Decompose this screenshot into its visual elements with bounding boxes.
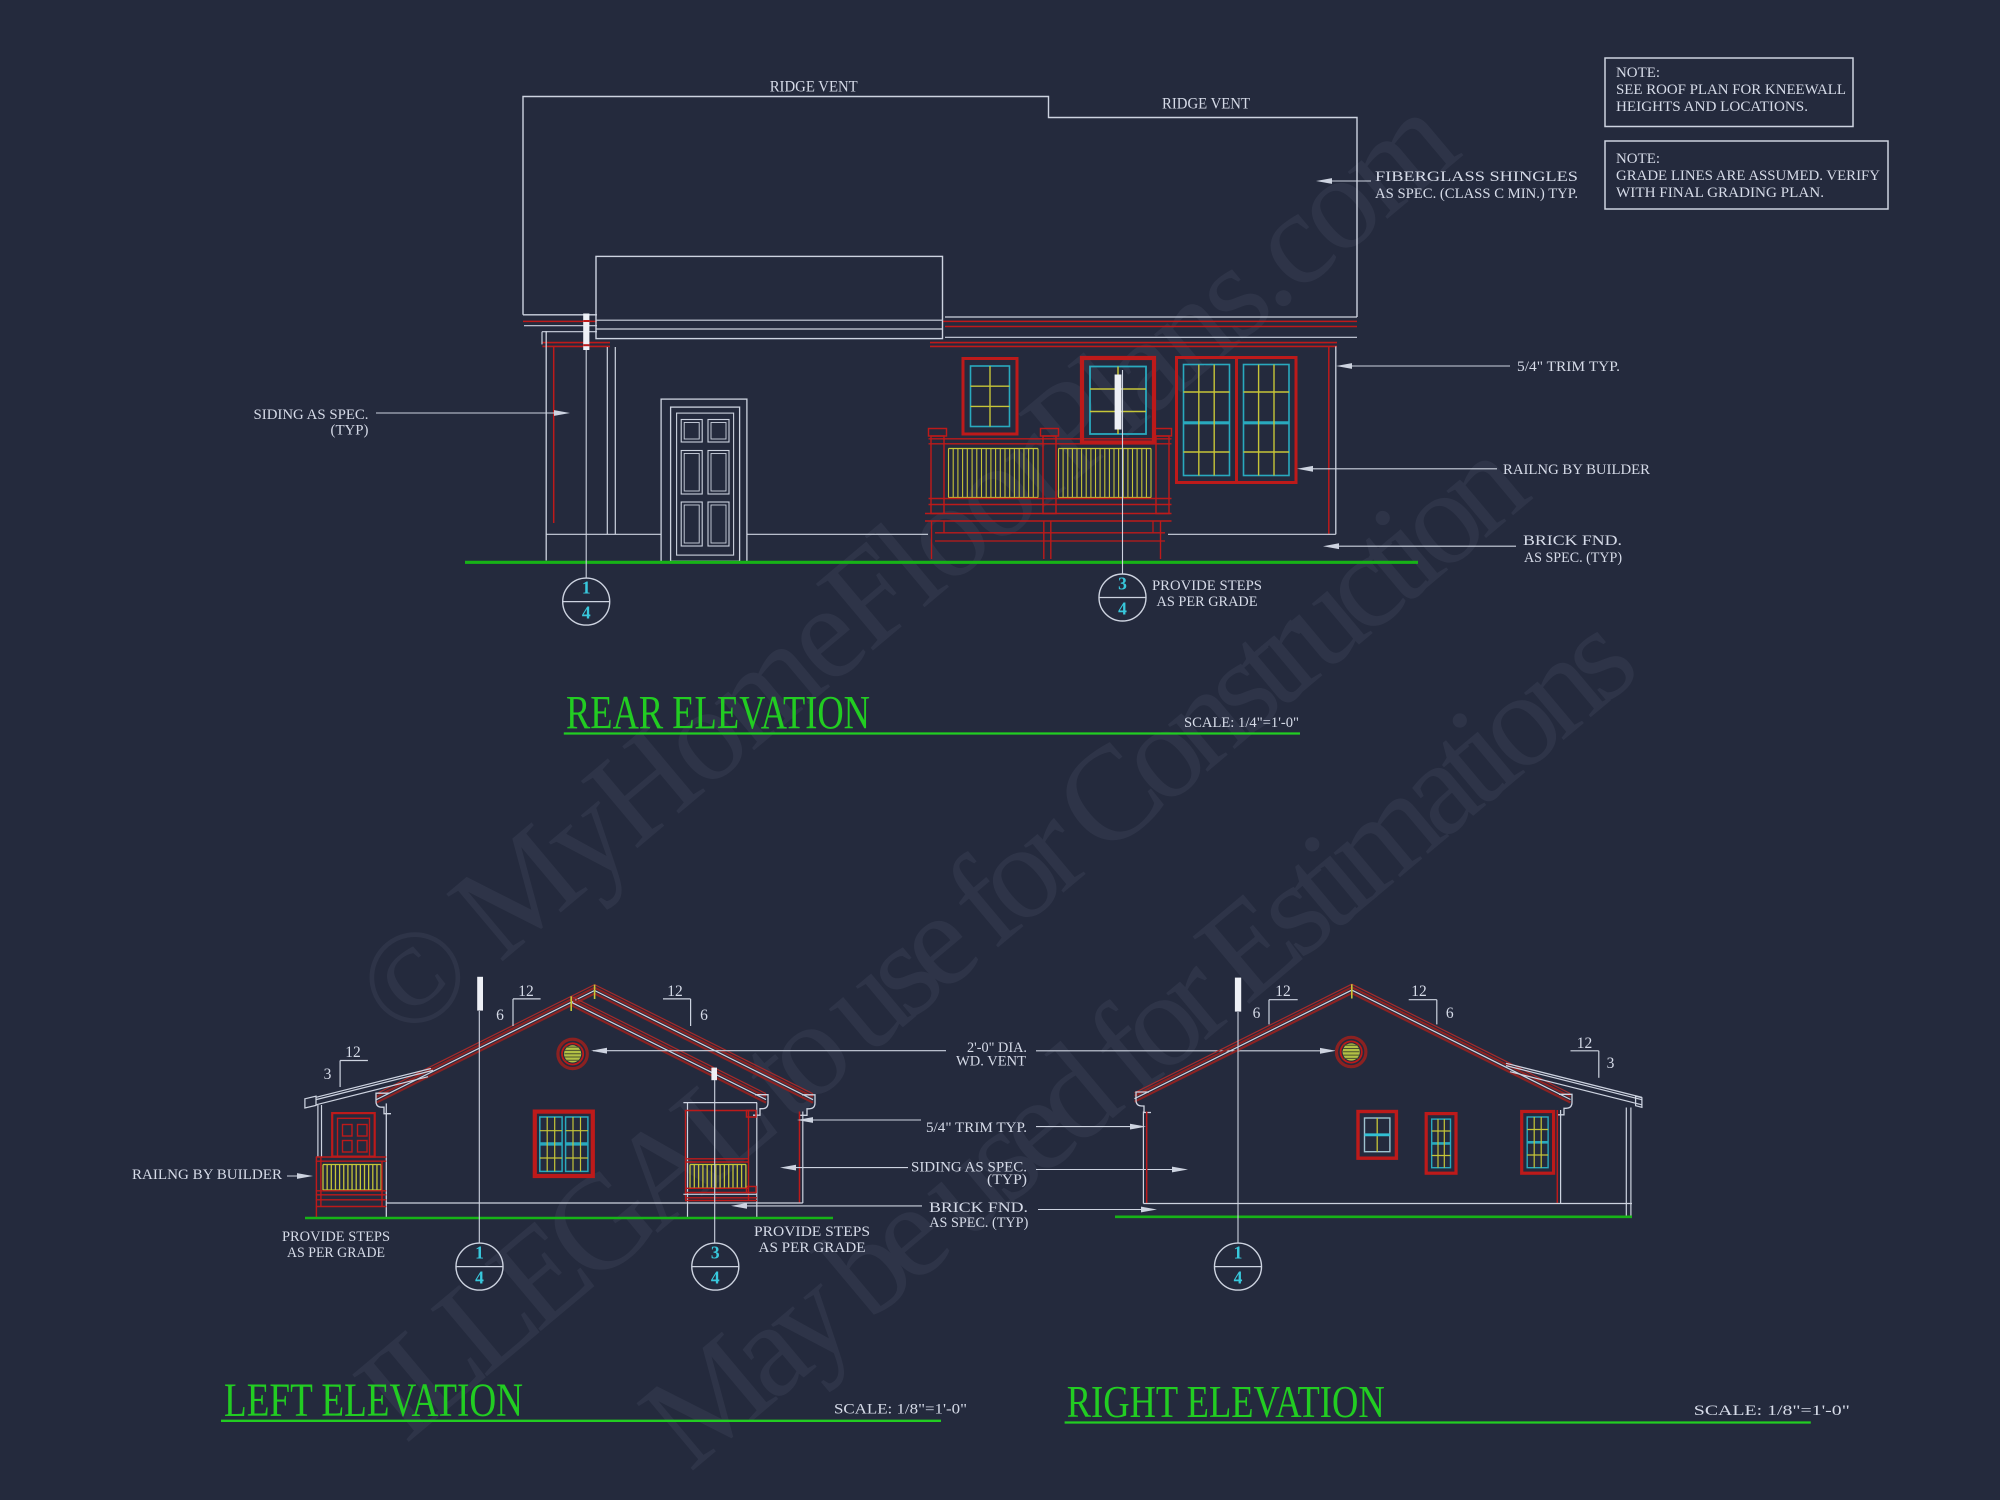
svg-text:12: 12 bbox=[667, 983, 683, 1000]
svg-text:AS SPEC. (TYP): AS SPEC. (TYP) bbox=[929, 1215, 1028, 1231]
svg-text:(TYP): (TYP) bbox=[331, 423, 369, 439]
svg-text:RIDGE VENT: RIDGE VENT bbox=[770, 79, 858, 96]
svg-text:WITH FINAL GRADING PLAN.: WITH FINAL GRADING PLAN. bbox=[1616, 185, 1824, 201]
svg-text:AS SPEC. (TYP): AS SPEC. (TYP) bbox=[1524, 550, 1622, 566]
svg-text:PROVIDE STEPS: PROVIDE STEPS bbox=[754, 1224, 870, 1240]
svg-text:SCALE: 1/8"=1'-0": SCALE: 1/8"=1'-0" bbox=[834, 1402, 967, 1418]
svg-text:AS SPEC. (CLASS C MIN.) TYP.: AS SPEC. (CLASS C MIN.) TYP. bbox=[1375, 186, 1578, 202]
svg-text:3: 3 bbox=[1607, 1055, 1615, 1072]
svg-text:5/4" TRIM TYP.: 5/4" TRIM TYP. bbox=[926, 1120, 1027, 1136]
svg-text:1: 1 bbox=[1234, 1243, 1243, 1263]
svg-text:3: 3 bbox=[711, 1243, 720, 1263]
svg-text:4: 4 bbox=[711, 1268, 720, 1288]
svg-text:4: 4 bbox=[1118, 599, 1127, 619]
svg-text:12: 12 bbox=[1577, 1035, 1593, 1052]
svg-text:3: 3 bbox=[324, 1066, 332, 1083]
svg-text:12: 12 bbox=[345, 1044, 361, 1061]
svg-text:SCALE: 1/8"=1'-0": SCALE: 1/8"=1'-0" bbox=[1694, 1403, 1850, 1419]
svg-text:1: 1 bbox=[475, 1243, 484, 1263]
svg-text:NOTE:: NOTE: bbox=[1616, 65, 1660, 81]
svg-text:3: 3 bbox=[1118, 574, 1127, 594]
svg-text:4: 4 bbox=[475, 1268, 484, 1288]
svg-text:SEE ROOF PLAN FOR KNEEWALL: SEE ROOF PLAN FOR KNEEWALL bbox=[1616, 82, 1846, 98]
svg-text:6: 6 bbox=[1446, 1005, 1454, 1022]
svg-text:12: 12 bbox=[518, 983, 534, 1000]
svg-text:PROVIDE STEPS: PROVIDE STEPS bbox=[282, 1229, 390, 1245]
svg-text:5/4" TRIM TYP.: 5/4" TRIM TYP. bbox=[1517, 359, 1620, 375]
svg-text:FIBERGLASS SHINGLES: FIBERGLASS SHINGLES bbox=[1375, 169, 1578, 185]
svg-text:HEIGHTS AND LOCATIONS.: HEIGHTS AND LOCATIONS. bbox=[1616, 99, 1808, 115]
svg-text:SCALE: 1/4"=1'-0": SCALE: 1/4"=1'-0" bbox=[1184, 715, 1299, 731]
svg-text:12: 12 bbox=[1411, 983, 1427, 1000]
svg-text:RIGHT ELEVATION: RIGHT ELEVATION bbox=[1067, 1376, 1385, 1427]
svg-text:BRICK FND.: BRICK FND. bbox=[929, 1200, 1028, 1216]
svg-text:6: 6 bbox=[700, 1007, 708, 1024]
svg-text:GRADE LINES ARE ASSUMED. VERIF: GRADE LINES ARE ASSUMED. VERIFY bbox=[1616, 168, 1880, 184]
svg-text:1: 1 bbox=[582, 578, 591, 598]
svg-text:NOTE:: NOTE: bbox=[1616, 151, 1660, 167]
svg-text:RAILNG BY BUILDER: RAILNG BY BUILDER bbox=[1503, 462, 1650, 478]
svg-text:LEFT ELEVATION: LEFT ELEVATION bbox=[224, 1374, 523, 1427]
svg-text:4: 4 bbox=[1234, 1268, 1243, 1288]
svg-text:AS PER GRADE: AS PER GRADE bbox=[287, 1245, 385, 1261]
svg-text:WD. VENT: WD. VENT bbox=[956, 1054, 1026, 1070]
svg-text:SIDING AS SPEC.: SIDING AS SPEC. bbox=[254, 407, 369, 423]
svg-text:4: 4 bbox=[582, 603, 591, 623]
svg-text:RAILNG BY BUILDER: RAILNG BY BUILDER bbox=[132, 1167, 282, 1183]
svg-text:12: 12 bbox=[1275, 983, 1291, 1000]
svg-text:RIDGE VENT: RIDGE VENT bbox=[1162, 96, 1250, 113]
svg-text:AS PER GRADE: AS PER GRADE bbox=[759, 1240, 866, 1256]
svg-text:(TYP): (TYP) bbox=[987, 1172, 1027, 1188]
svg-text:6: 6 bbox=[1253, 1005, 1261, 1022]
svg-text:BRICK FND.: BRICK FND. bbox=[1523, 533, 1622, 549]
svg-text:PROVIDE STEPS: PROVIDE STEPS bbox=[1152, 578, 1262, 594]
svg-text:REAR ELEVATION: REAR ELEVATION bbox=[566, 687, 870, 740]
svg-text:6: 6 bbox=[496, 1007, 504, 1024]
svg-text:AS PER GRADE: AS PER GRADE bbox=[1157, 594, 1258, 610]
